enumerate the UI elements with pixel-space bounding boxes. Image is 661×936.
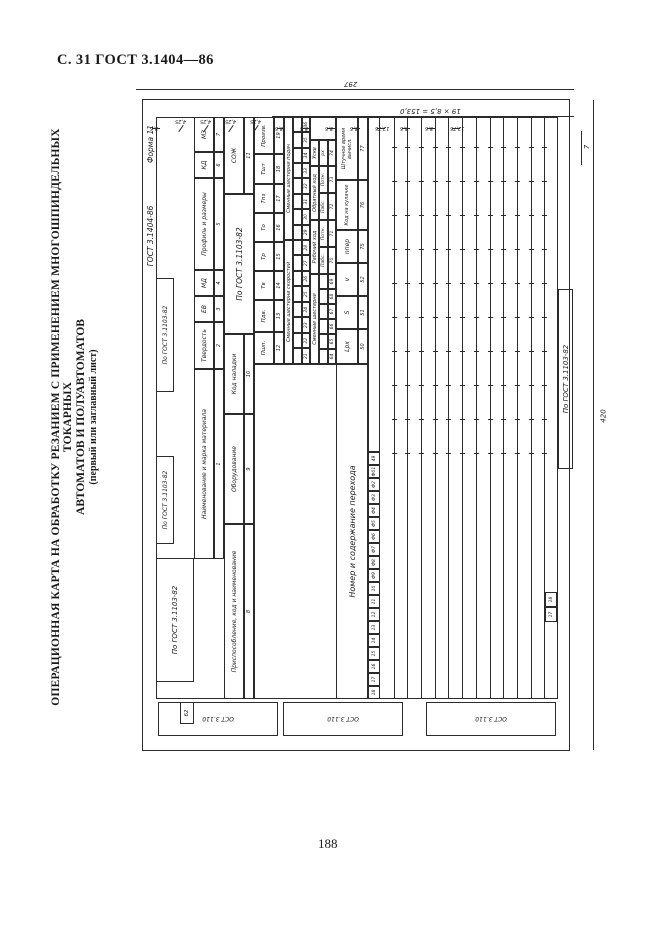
side-title-line2: АВТОМАТОВ И ПОЛУАВТОМАТОВ xyxy=(75,92,87,742)
h3-3-label: Тр xyxy=(254,242,274,271)
r6-2-label: v xyxy=(336,263,358,296)
gear-0-cell-2 xyxy=(293,318,302,334)
body-tick xyxy=(501,249,506,250)
r6-0-num: 50 xyxy=(358,329,368,364)
page-header: С. 31 ГОСТ 3.1404—86 xyxy=(57,52,214,69)
body-tick xyxy=(460,351,465,352)
r5-gear-num-2: 66 xyxy=(328,319,336,334)
body-tick xyxy=(529,249,534,250)
line-num-9: Ф9 xyxy=(368,569,380,582)
gear-1-cell-0 xyxy=(293,225,302,240)
r5-gear-num-5: 69 xyxy=(328,274,336,289)
body-tick xyxy=(392,317,397,318)
r5-gear-cell-4 xyxy=(319,289,328,304)
gear-0-num-5: 26 xyxy=(302,271,310,287)
body-tick xyxy=(488,283,493,284)
gear-0-cell-7 xyxy=(293,240,302,256)
body-tick xyxy=(446,351,451,352)
body-tick xyxy=(474,385,479,386)
h3-6-num: 18 xyxy=(274,154,284,184)
gear-group-1-label: Сменные шестерни подач xyxy=(284,117,293,240)
body-tick xyxy=(515,147,520,148)
body-tick xyxy=(515,419,520,420)
body-tick xyxy=(542,317,547,318)
r5-gear-num-0: 64 xyxy=(328,349,336,364)
h3-5-num: 17 xyxy=(274,184,284,213)
body-tick xyxy=(501,317,506,318)
line-num-rest xyxy=(368,117,380,452)
body-tick xyxy=(433,215,438,216)
body-row-line xyxy=(421,117,422,699)
line-num-5: 13 xyxy=(368,621,380,634)
gear-0-cell-0 xyxy=(293,349,302,365)
body-tick xyxy=(392,453,397,454)
body-tick xyxy=(501,215,506,216)
line-num-7: 11 xyxy=(368,595,380,608)
r6-4-label: Код на кулачке xyxy=(336,180,358,230)
margin-box-0: По ГОСТ 3.1103-82 xyxy=(158,702,278,736)
body-tick xyxy=(460,147,465,148)
body-tick xyxy=(474,351,479,352)
body-tick xyxy=(474,419,479,420)
r5-gear-cell-2 xyxy=(319,319,328,334)
r5-back-label: Обратный ход xyxy=(310,166,319,220)
h3-0-num: 12 xyxy=(274,332,284,364)
body-tick xyxy=(488,453,493,454)
body-tick xyxy=(460,283,465,284)
dim-line-7 xyxy=(581,131,582,165)
body-tick xyxy=(515,351,520,352)
r6-2-num: 52 xyxy=(358,263,368,296)
body-tick xyxy=(529,147,534,148)
body-tick xyxy=(433,419,438,420)
body-tick xyxy=(405,453,410,454)
gost-ref-box-1: По ГОСТ 3.1103-82 xyxy=(156,456,174,544)
body-tick xyxy=(488,317,493,318)
body-tick xyxy=(446,283,451,284)
body-tick xyxy=(433,453,438,454)
gear-1-num-5: 34 xyxy=(302,148,310,163)
dim-segment-tick xyxy=(152,128,160,129)
transition-header: Номер и содержание перехода xyxy=(336,364,368,699)
gear-0-cell-3 xyxy=(293,302,302,318)
body-tick xyxy=(419,351,424,352)
r5-fast-cell-0: рх xyxy=(319,140,328,166)
dim-segment-tick xyxy=(402,128,410,129)
h2-1-num: 9 xyxy=(244,414,254,524)
body-tick xyxy=(419,147,424,148)
body-tick xyxy=(460,249,465,250)
body-tick xyxy=(460,385,465,386)
r5-work-label: Рабочий ход xyxy=(310,220,319,274)
body-tick xyxy=(433,351,438,352)
body-row-line xyxy=(503,117,504,699)
body-tick xyxy=(542,385,547,386)
body-tick xyxy=(488,385,493,386)
dim-7: 7 xyxy=(583,145,591,149)
h3-4-num: 16 xyxy=(274,213,284,242)
h3-7-num: 19 xyxy=(274,117,284,154)
body-tick xyxy=(529,351,534,352)
body-row-line xyxy=(490,117,491,699)
margin-box-1: По ГОСТ 3.1103-82 xyxy=(283,702,403,736)
body-tick xyxy=(529,385,534,386)
body-tick xyxy=(405,215,410,216)
gear-0-num-3: 24 xyxy=(302,302,310,318)
r6-4-num: 76 xyxy=(358,180,368,230)
body-tick xyxy=(419,215,424,216)
h2-4-label: СОЖ xyxy=(224,117,244,194)
margin-box-2: По ГОСТ 3.1103-82 xyxy=(426,702,556,736)
body-tick xyxy=(405,351,410,352)
line-num-4: 14 xyxy=(368,634,380,647)
h1-1-label: Твердость xyxy=(194,322,214,369)
body-row-line xyxy=(394,117,395,699)
body-tick xyxy=(446,147,451,148)
bottom-cell-1: 18 xyxy=(545,592,557,607)
h3-4-label: То xyxy=(254,213,274,242)
body-tick xyxy=(392,181,397,182)
body-tick xyxy=(515,215,520,216)
side-title: ОПЕРАЦИОННАЯ КАРТА НА ОБРАБОТКУ РЕЗАНИЕМ… xyxy=(50,92,116,742)
r6-0-label: Lрх xyxy=(336,329,358,364)
body-tick xyxy=(501,283,506,284)
body-tick xyxy=(501,385,506,386)
h3-1-num: 13 xyxy=(274,300,284,332)
body-tick xyxy=(392,215,397,216)
body-tick xyxy=(446,249,451,250)
body-tick xyxy=(433,249,438,250)
body-tick xyxy=(542,181,547,182)
body-tick xyxy=(501,181,506,182)
dim-line-297 xyxy=(136,89,574,90)
body-tick xyxy=(515,249,520,250)
line-num-2: 16 xyxy=(368,660,380,673)
gear-1-cell-4 xyxy=(293,163,302,178)
h1-5-num: 6 xyxy=(214,152,224,178)
r5-fast-label: Ускв xyxy=(310,140,319,166)
gear-0-cell-1 xyxy=(293,333,302,349)
body-tick xyxy=(433,385,438,386)
body-tick xyxy=(446,317,451,318)
rotated-form: ГОСТ 3.1404-86Форма 11По ГОСТ 3.1103-82П… xyxy=(128,92,575,754)
r5-gear-cell-3 xyxy=(319,304,328,319)
body-tick xyxy=(405,419,410,420)
body-tick xyxy=(542,147,547,148)
body-tick xyxy=(460,181,465,182)
body-row-line xyxy=(476,117,477,699)
r6-1-num: 51 xyxy=(358,296,368,329)
body-tick xyxy=(542,453,547,454)
gear-1-cell-3 xyxy=(293,179,302,194)
body-tick xyxy=(392,283,397,284)
gear-1-num-4: 33 xyxy=(302,163,310,178)
body-tick xyxy=(529,317,534,318)
h2-4-num: 11 xyxy=(244,117,254,194)
line-num-16: Ф2 xyxy=(368,478,380,491)
r5-work-cell-0: Пабс. xyxy=(319,247,328,274)
dim-420: 420 xyxy=(600,409,608,422)
dim-segment-tick xyxy=(277,128,285,129)
r5-gear-num-3: 67 xyxy=(328,304,336,319)
body-tick xyxy=(460,419,465,420)
body-tick xyxy=(433,181,438,182)
body-tick xyxy=(446,215,451,216)
line-num-10: Ф8 xyxy=(368,556,380,569)
body-tick xyxy=(446,181,451,182)
h1-1-num: 2 xyxy=(214,322,224,369)
r5-gears-label: Сменные шестерни xyxy=(310,274,319,364)
line-num-6: 12 xyxy=(368,608,380,621)
body-tick xyxy=(542,249,547,250)
gear-1-cell-2 xyxy=(293,194,302,209)
r6-1-label: S xyxy=(336,296,358,329)
body-tick xyxy=(392,385,397,386)
body-row-line xyxy=(435,117,436,699)
body-tick xyxy=(474,147,479,148)
dim-line-420 xyxy=(593,100,594,750)
body-tick xyxy=(529,181,534,182)
body-tick xyxy=(515,181,520,182)
body-tick xyxy=(488,249,493,250)
body-tick xyxy=(515,385,520,386)
body-tick xyxy=(542,215,547,216)
h3-5-label: Тпз xyxy=(254,184,274,213)
gear-1-num-3: 32 xyxy=(302,179,310,194)
body-tick xyxy=(501,419,506,420)
gear-0-cell-6 xyxy=(293,256,302,272)
h1-6-num: 7 xyxy=(214,117,224,152)
gear-0-num-6: 27 xyxy=(302,256,310,272)
body-tick xyxy=(529,215,534,216)
dim-segment-tick xyxy=(377,128,385,129)
body-tick xyxy=(405,385,410,386)
h1-4-label: Профиль и размеры xyxy=(194,178,214,270)
r5-work-num-1: 71 xyxy=(328,220,336,247)
gear-1-cell-1 xyxy=(293,209,302,224)
h1-2-label: ЕВ xyxy=(194,296,214,322)
r5-back-cell-1: Потн. xyxy=(319,166,328,193)
body-tick xyxy=(405,283,410,284)
h1-3-label: МД xyxy=(194,270,214,296)
h1-5-label: КД xyxy=(194,152,214,178)
body-tick xyxy=(460,453,465,454)
side-title-line3: (первый или заглавный лист) xyxy=(88,92,99,742)
body-tick xyxy=(392,351,397,352)
h2-0-num: 8 xyxy=(244,524,254,699)
gear-0-num-4: 25 xyxy=(302,287,310,303)
side-title-line1: ОПЕРАЦИОННАЯ КАРТА НА ОБРАБОТКУ РЕЗАНИЕМ… xyxy=(50,92,74,742)
line-num-12: Ф6 xyxy=(368,530,380,543)
body-row-line xyxy=(448,117,449,699)
body-tick xyxy=(542,283,547,284)
dim-segment-tick xyxy=(452,128,460,129)
line-num-11: Ф7 xyxy=(368,543,380,556)
body-tick xyxy=(419,181,424,182)
gost-ref-box-tall: По ГОСТ 3.1103-82 xyxy=(156,558,194,682)
body-tick xyxy=(529,283,534,284)
body-tick xyxy=(419,317,424,318)
gost-ref-box-2: По ГОСТ 3.1103-82 xyxy=(156,278,174,392)
gear-0-num-0: 21 xyxy=(302,349,310,365)
body-tick xyxy=(446,419,451,420)
gear-1-cell-6 xyxy=(293,132,302,147)
line-num-13: Ф5 xyxy=(368,517,380,530)
body-tick xyxy=(405,249,410,250)
dim-segment-tick xyxy=(352,128,360,129)
body-tick xyxy=(446,453,451,454)
body-tick xyxy=(433,147,438,148)
h3-2-num: 14 xyxy=(274,271,284,300)
dim-segment: 4,25 xyxy=(250,118,261,124)
body-tick xyxy=(392,419,397,420)
body-row-line xyxy=(462,117,463,699)
page-number: 188 xyxy=(318,836,338,852)
gear-0-cell-5 xyxy=(293,271,302,287)
body-tick xyxy=(419,419,424,420)
r5-fast-num-0: 74 xyxy=(328,140,336,166)
h3-1-label: Пдв. xyxy=(254,300,274,332)
r6-5-num: 77 xyxy=(358,117,368,180)
body-tick xyxy=(515,317,520,318)
body-tick xyxy=(474,317,479,318)
body-tick xyxy=(529,419,534,420)
r5-back-num-1: 73 xyxy=(328,166,336,193)
line-num-17: Ф01 xyxy=(368,465,380,478)
gear-group-0-label: Сменные шестерни скоростей xyxy=(284,240,293,364)
h1-3-num: 4 xyxy=(214,270,224,296)
dim-segment: 4,25 xyxy=(200,118,211,124)
dim-segment-tick xyxy=(427,128,435,129)
body-row-line xyxy=(517,117,518,699)
dim-segment-tick xyxy=(302,128,310,129)
line-num-15: Ф3 xyxy=(368,491,380,504)
form-no: Форма 11 xyxy=(145,109,155,179)
body-row-line xyxy=(531,117,532,699)
body-tick xyxy=(446,385,451,386)
body-tick xyxy=(433,283,438,284)
body-row-line xyxy=(407,117,408,699)
body-tick xyxy=(515,453,520,454)
body-tick xyxy=(419,385,424,386)
r5-work-cell-1: Потн. xyxy=(319,220,328,247)
r5-back-cell-0: Пабс. xyxy=(319,193,328,220)
body-tick xyxy=(501,147,506,148)
body-tick xyxy=(405,317,410,318)
h2-gostref: По ГОСТ 3.1103-82 xyxy=(224,194,254,334)
body-tick xyxy=(474,453,479,454)
gear-1-num-0: 29 xyxy=(302,225,310,240)
body-tick xyxy=(392,249,397,250)
body-tick xyxy=(433,317,438,318)
body-tick xyxy=(419,249,424,250)
r5-gear-cell-0 xyxy=(319,349,328,364)
gear-1-num-1: 30 xyxy=(302,209,310,224)
body-tick xyxy=(474,181,479,182)
gear-0-num-7: 28 xyxy=(302,240,310,256)
line-num-8: 10 xyxy=(368,582,380,595)
h3-6-label: Тшт xyxy=(254,154,274,184)
gear-1-num-6: 35 xyxy=(302,132,310,147)
r5-gear-cell-5 xyxy=(319,274,328,289)
body-tick xyxy=(488,351,493,352)
body-tick xyxy=(419,283,424,284)
h2-2-label: Код наладки xyxy=(224,334,244,414)
body-tick xyxy=(529,453,534,454)
line-num-0: 18 xyxy=(368,686,380,699)
gear-0-num-2: 23 xyxy=(302,318,310,334)
gear-0-num-1: 22 xyxy=(302,333,310,349)
h1-0-num: 1 xyxy=(214,369,224,559)
body-tick xyxy=(542,419,547,420)
h3-0-label: Пшп. xyxy=(254,332,274,364)
h1-0-label: Наименование и марка материала xyxy=(194,369,214,559)
gear-0-cell-4 xyxy=(293,287,302,303)
line-num-18: 49 xyxy=(368,452,380,465)
dim-segment: 4,25 xyxy=(225,118,236,124)
body-tick xyxy=(474,283,479,284)
r5-gear-cell-1 xyxy=(319,334,328,349)
body-tick xyxy=(488,419,493,420)
r6-3-label: nпер xyxy=(336,230,358,263)
body-tick xyxy=(501,453,506,454)
h1-4-num: 5 xyxy=(214,178,224,270)
body-tick xyxy=(392,147,397,148)
h1-2-num: 3 xyxy=(214,296,224,322)
h3-2-label: Тв xyxy=(254,271,274,300)
r5-back-num-0: 72 xyxy=(328,193,336,220)
line-num-3: 15 xyxy=(368,647,380,660)
body-tick xyxy=(501,351,506,352)
body-tick xyxy=(405,181,410,182)
body-tick xyxy=(474,249,479,250)
gear-1-cell-5 xyxy=(293,148,302,163)
body-tick xyxy=(474,215,479,216)
body-tick xyxy=(419,453,424,454)
dim-segment-tick xyxy=(327,128,335,129)
body-tick xyxy=(542,351,547,352)
title-block: По ГОСТ 3.1103-82 xyxy=(558,289,573,469)
gear-1-num-2: 31 xyxy=(302,194,310,209)
bottom-cell-0: 17 xyxy=(545,607,557,622)
form-standard: ГОСТ 3.1404-86 xyxy=(145,186,155,286)
r5-gear-num-1: 65 xyxy=(328,334,336,349)
dim-297: 297 xyxy=(344,80,357,88)
body-tick xyxy=(488,147,493,148)
document-page: С. 31 ГОСТ 3.1404—86 ОПЕРАЦИОННАЯ КАРТА … xyxy=(0,0,661,936)
h3-3-num: 15 xyxy=(274,242,284,271)
body-tick xyxy=(460,317,465,318)
body-tick xyxy=(460,215,465,216)
body-tick xyxy=(488,215,493,216)
dim-segment: 4,25 xyxy=(175,118,186,124)
body-tick xyxy=(405,147,410,148)
body-tick xyxy=(488,181,493,182)
h2-1-label: Оборудование xyxy=(224,414,244,524)
body-tick xyxy=(515,283,520,284)
r5-gear-num-4: 68 xyxy=(328,289,336,304)
r5-work-num-0: 70 xyxy=(328,247,336,274)
line-num-14: Ф4 xyxy=(368,504,380,517)
r6-3-num: 75 xyxy=(358,230,368,263)
h2-2-num: 10 xyxy=(244,334,254,414)
line-num-1: 17 xyxy=(368,673,380,686)
